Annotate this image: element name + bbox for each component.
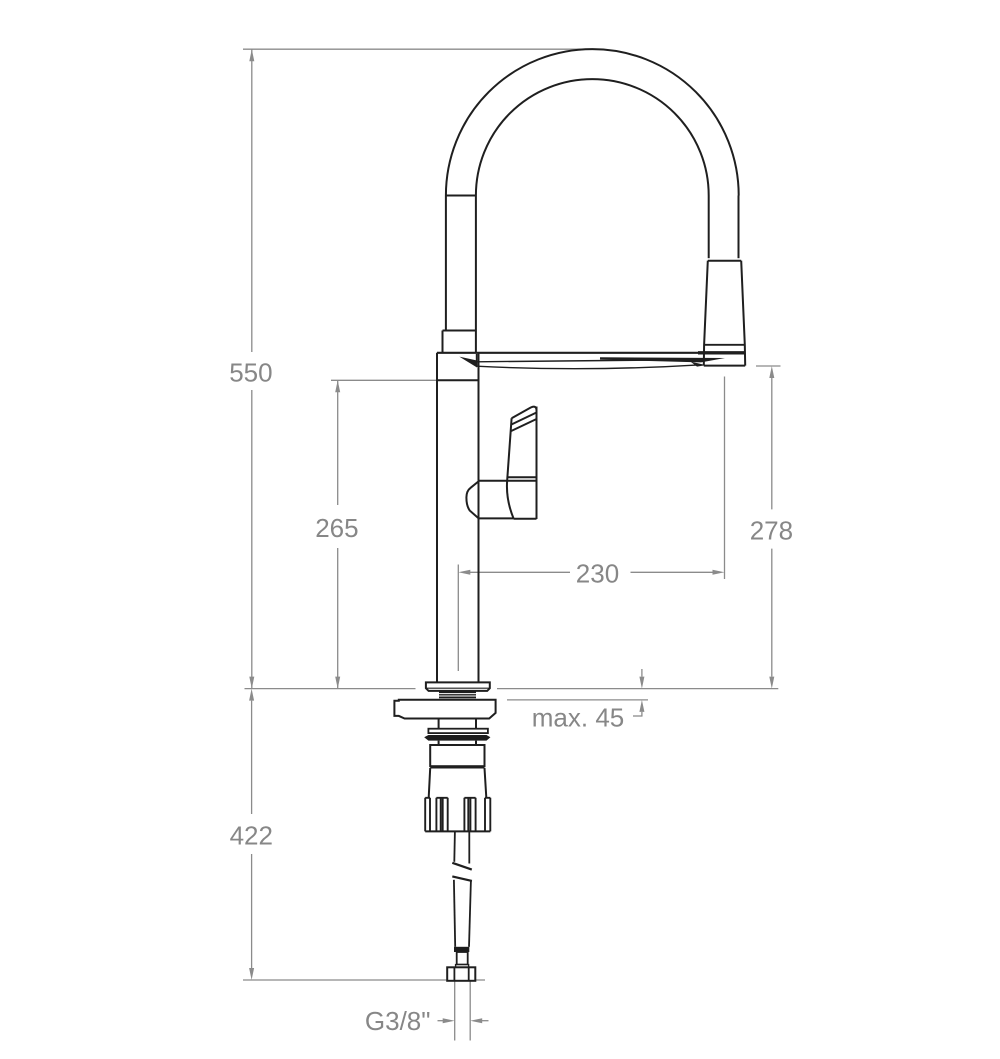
svg-text:422: 422 bbox=[230, 820, 273, 850]
svg-text:230: 230 bbox=[576, 559, 619, 589]
svg-text:278: 278 bbox=[750, 516, 793, 546]
svg-text:265: 265 bbox=[315, 513, 358, 543]
svg-text:max. 45: max. 45 bbox=[532, 703, 625, 733]
svg-text:550: 550 bbox=[229, 358, 272, 388]
svg-text:G3/8": G3/8" bbox=[365, 1006, 431, 1036]
